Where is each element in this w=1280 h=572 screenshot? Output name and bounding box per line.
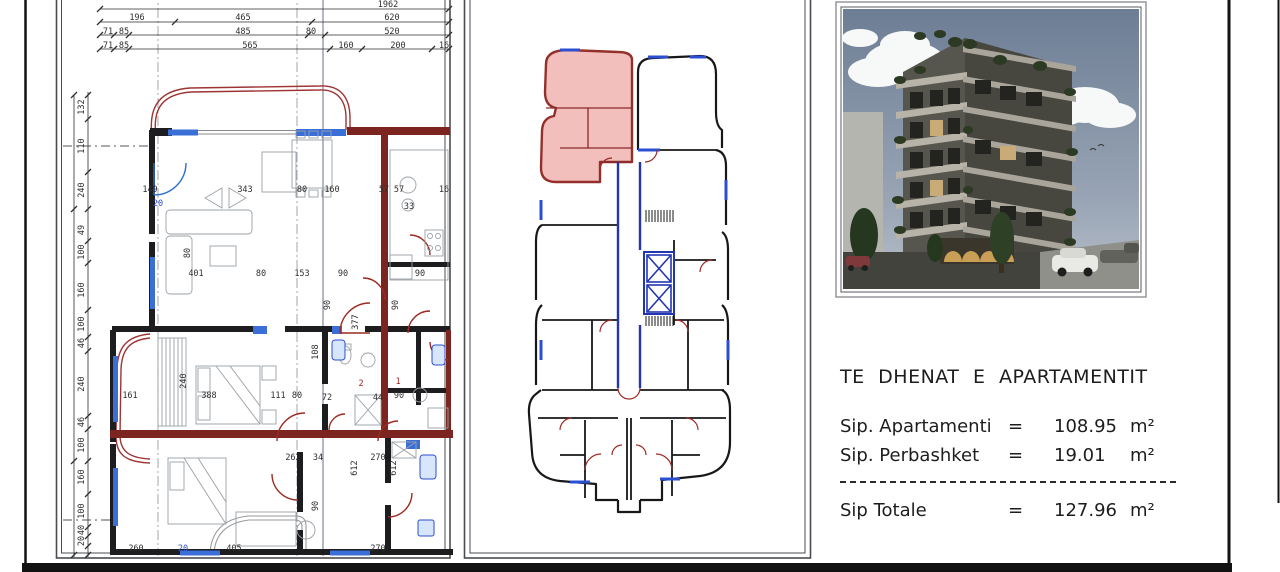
equals-sign: = (1008, 412, 1054, 441)
svg-text:1962: 1962 (378, 0, 398, 10)
svg-text:111: 111 (270, 391, 285, 401)
svg-text:85: 85 (119, 41, 129, 51)
svg-text:160: 160 (77, 282, 87, 297)
row-unit: m² (1130, 412, 1155, 441)
svg-text:405: 405 (226, 544, 241, 554)
info-row-apartment: Sip. Apartamenti=108.95m² (840, 412, 1185, 441)
svg-text:401: 401 (188, 269, 203, 279)
svg-text:100: 100 (77, 437, 87, 452)
svg-text:90: 90 (323, 300, 333, 310)
svg-text:20: 20 (153, 199, 163, 209)
key-plan-doors (560, 150, 712, 470)
svg-text:240: 240 (179, 373, 189, 388)
row-value: 108.95 (1054, 412, 1130, 441)
equals-sign: = (1008, 496, 1054, 525)
svg-text:377: 377 (351, 314, 361, 329)
key-plan-walls (538, 150, 726, 500)
svg-text:262: 262 (285, 453, 300, 463)
dashed-divider (840, 481, 1176, 483)
row-unit: m² (1130, 496, 1155, 525)
apartment-data-panel: TE DHENAT E APARTAMENTIT Sip. Apartament… (840, 366, 1185, 525)
svg-text:90: 90 (394, 391, 404, 401)
svg-text:71: 71 (103, 41, 113, 51)
svg-text:80: 80 (183, 248, 193, 258)
row-value: 127.96 (1054, 496, 1130, 525)
svg-text:80: 80 (297, 185, 307, 195)
svg-text:34: 34 (313, 453, 323, 463)
building-photo (836, 2, 1146, 297)
svg-text:46: 46 (77, 417, 87, 427)
svg-text:620: 620 (384, 13, 399, 23)
svg-text:100: 100 (77, 244, 87, 259)
row-unit: m² (1130, 441, 1155, 470)
svg-text:16: 16 (439, 185, 449, 195)
equals-sign: = (1008, 441, 1054, 470)
svg-text:612: 612 (350, 460, 360, 475)
svg-text:90: 90 (311, 501, 321, 511)
svg-text:46: 46 (77, 338, 87, 348)
windows (113, 129, 420, 556)
svg-text:90: 90 (338, 269, 348, 279)
detail-plan-panel: 1962196465620718548580520718556516020016… (57, 0, 454, 558)
svg-text:80: 80 (256, 269, 266, 279)
svg-text:100: 100 (77, 316, 87, 331)
svg-text:44: 44 (373, 393, 383, 403)
svg-text:270: 270 (370, 453, 385, 463)
svg-text:240: 240 (77, 182, 87, 197)
row-label: Sip. Perbashket (840, 441, 1008, 470)
row-value: 19.01 (1054, 441, 1130, 470)
svg-text:80: 80 (292, 391, 302, 401)
glazing (198, 131, 296, 135)
svg-text:270: 270 (370, 544, 385, 554)
svg-text:2: 2 (358, 379, 363, 389)
svg-text:260: 260 (128, 544, 143, 554)
svg-text:240: 240 (77, 376, 87, 391)
svg-text:1: 1 (395, 377, 400, 387)
info-row-common: Sip. Perbashket=19.01m² (840, 441, 1185, 470)
svg-text:90: 90 (391, 300, 401, 310)
dimension-labels: 1962196465620718548580520718556516020016… (77, 0, 449, 554)
svg-text:85: 85 (119, 27, 129, 37)
svg-text:160: 160 (324, 185, 339, 195)
svg-text:200: 200 (390, 41, 405, 51)
svg-text:57: 57 (379, 185, 389, 195)
row-label: Sip. Apartamenti (840, 412, 1008, 441)
svg-text:161: 161 (122, 391, 137, 401)
svg-text:388: 388 (201, 391, 216, 401)
svg-text:485: 485 (235, 27, 250, 37)
balcony-door-swing (154, 163, 186, 195)
svg-text:72: 72 (322, 393, 332, 403)
svg-text:465: 465 (235, 13, 250, 23)
info-title: TE DHENAT E APARTAMENTIT (840, 366, 1185, 388)
row-label: Sip Totale (840, 496, 1008, 525)
svg-text:153: 153 (294, 269, 309, 279)
svg-text:57: 57 (394, 185, 404, 195)
svg-text:110: 110 (77, 138, 87, 153)
svg-text:20: 20 (178, 544, 188, 554)
svg-text:196: 196 (129, 13, 144, 23)
datasheet: 1962196465620718548580520718556516020016… (0, 0, 1280, 572)
svg-text:49: 49 (77, 225, 87, 235)
svg-text:100: 100 (77, 503, 87, 518)
key-plan-panel (465, 0, 811, 558)
svg-text:612: 612 (389, 460, 399, 475)
svg-text:149: 149 (142, 185, 157, 195)
info-row-total: Sip Totale=127.96m² (840, 496, 1185, 525)
svg-text:90: 90 (415, 269, 425, 279)
svg-text:343: 343 (237, 185, 252, 195)
svg-text:108: 108 (311, 344, 321, 359)
svg-text:33: 33 (404, 202, 414, 212)
svg-text:565: 565 (242, 41, 257, 51)
svg-text:16: 16 (439, 41, 449, 51)
svg-text:160: 160 (77, 469, 87, 484)
svg-text:160: 160 (338, 41, 353, 51)
svg-text:520: 520 (384, 27, 399, 37)
svg-text:40: 40 (77, 525, 87, 535)
svg-text:20: 20 (77, 536, 87, 546)
svg-text:132: 132 (77, 99, 87, 114)
svg-text:71: 71 (103, 27, 113, 37)
svg-text:80: 80 (306, 27, 316, 37)
